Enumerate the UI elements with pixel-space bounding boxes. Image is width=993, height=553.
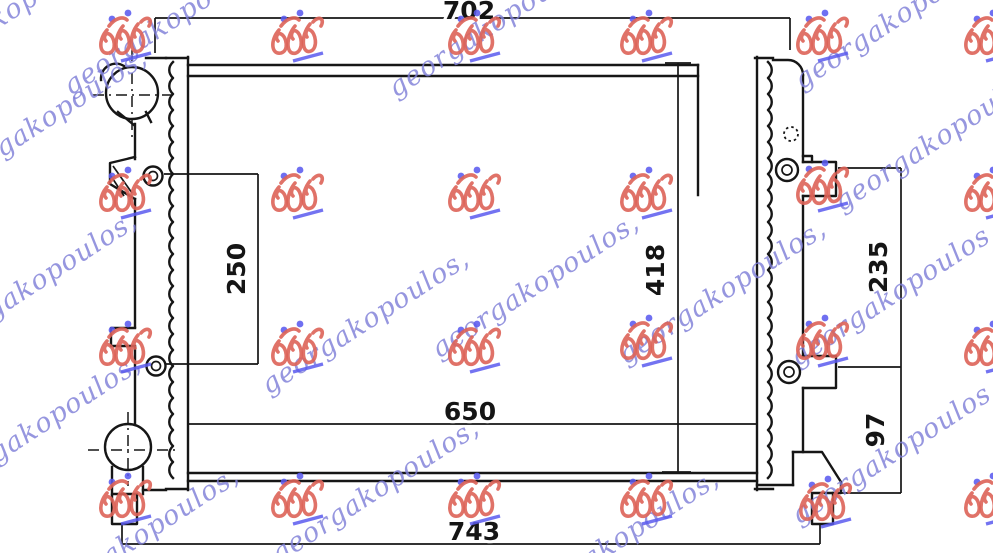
dim-core-height: 418 (641, 244, 670, 296)
watermark-text: georgakopoulos, (426, 207, 646, 365)
watermark-text: georgakopoulos, (789, 0, 993, 96)
watermark-layer: georgakopoulos, georgakopoulos, georgako… (0, 0, 993, 553)
watermark-text: georgakopoulos, (26, 460, 246, 553)
radiator-technical-drawing: 702 743 650 418 235 97 250 georgakopoulo… (0, 0, 993, 553)
left-header-plate (166, 57, 188, 490)
watermark-text: georgakopoulos, (383, 0, 603, 104)
watermark-text: georgakopoulos, (506, 463, 726, 553)
left-tank (88, 50, 178, 524)
filler-detail (784, 127, 798, 141)
upper-right-mounting-hole (776, 159, 798, 181)
watermark-text: georgakopoulos, (256, 243, 476, 401)
dim-left-span: 250 (222, 243, 251, 295)
watermark-texts: georgakopoulos, georgakopoulos, georgako… (0, 0, 993, 553)
